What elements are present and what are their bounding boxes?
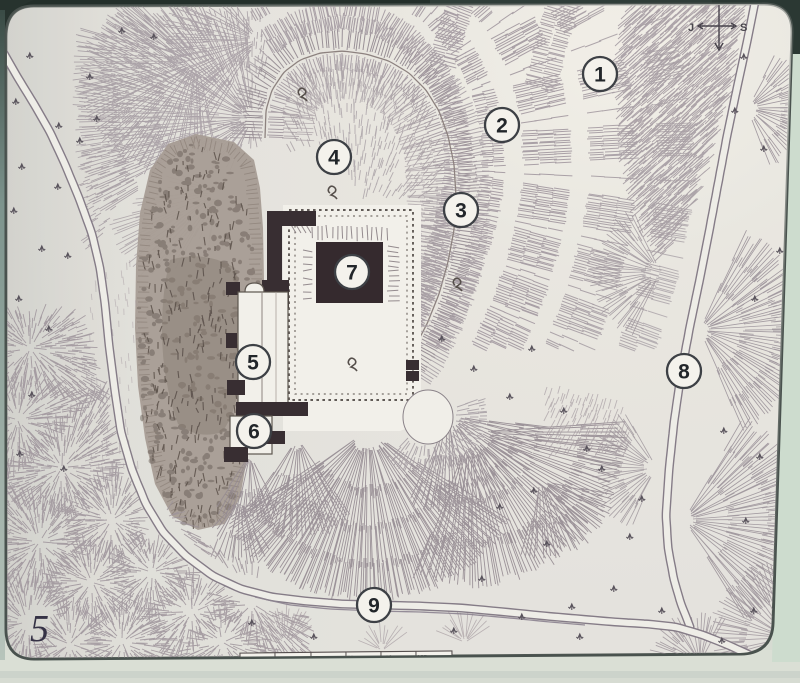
svg-text:4: 4 [328,147,340,170]
svg-text:8: 8 [678,361,690,384]
svg-text:3: 3 [455,200,467,223]
svg-text:6: 6 [248,421,260,444]
svg-text:7: 7 [346,262,358,285]
svg-text:S: S [740,22,747,34]
svg-text:9: 9 [368,595,380,618]
svg-text:5: 5 [247,352,259,375]
svg-text:5: 5 [30,608,49,650]
svg-text:2: 2 [496,115,508,138]
svg-text:1: 1 [594,64,606,87]
svg-text:J: J [688,22,694,34]
